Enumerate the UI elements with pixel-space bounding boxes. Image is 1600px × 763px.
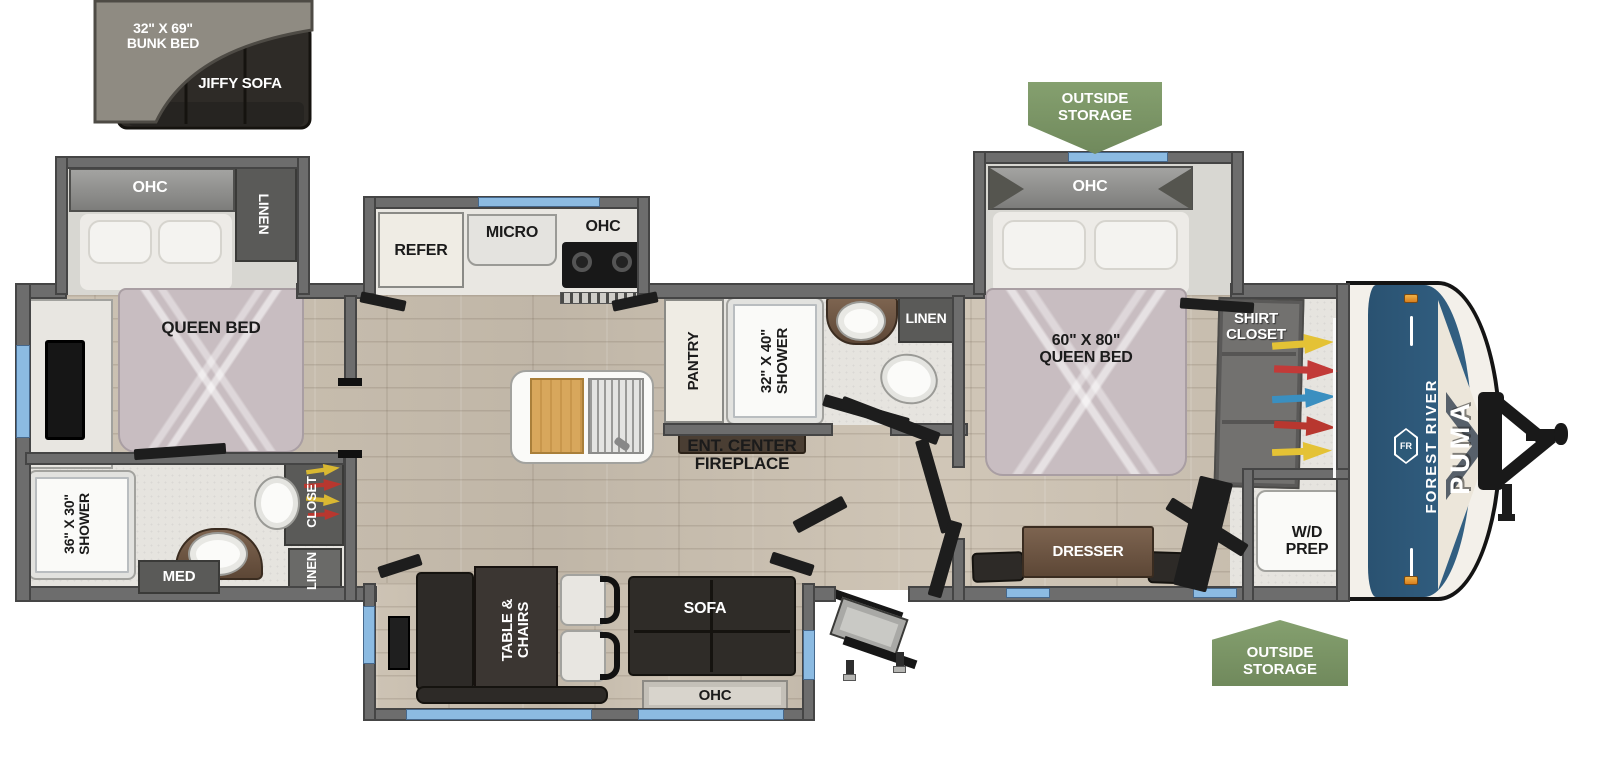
- med-label: MED: [140, 566, 218, 588]
- refer-label: REFER: [378, 240, 464, 262]
- micro-label: MICRO: [467, 222, 557, 244]
- chair-back-2-icon: [600, 632, 620, 680]
- closet-rod: [1333, 318, 1336, 478]
- tv-rear-bedroom-icon: [45, 340, 85, 440]
- living-slide-window-1: [406, 709, 592, 720]
- wd-prep-label: W/D PREP: [1272, 518, 1342, 564]
- tv-living-icon: [388, 616, 410, 670]
- rear-closet-label: CLOSET: [304, 464, 320, 540]
- mid-shower-label: 32" X 40" SHOWER: [758, 305, 792, 417]
- rv-floorplan: FR 32" X 69" BUNK BED JIFFY SOFA OUTSIDE…: [0, 0, 1600, 763]
- kitchen-ohc-label: OHC: [565, 216, 641, 238]
- living-slide-window-2: [638, 709, 784, 720]
- front-bedroom-ohc-label: OHC: [1038, 174, 1142, 200]
- wd-wall-left: [1242, 468, 1254, 602]
- bottom-window-1: [1006, 588, 1050, 598]
- chair-back-1-icon: [600, 576, 620, 624]
- rear-window: [16, 345, 30, 438]
- rear-bedroom-ohc-label: OHC: [100, 176, 200, 200]
- sofa-seat-line: [634, 630, 790, 633]
- pantry-label: PANTRY: [685, 309, 703, 413]
- kitchen-slide-wall-left: [363, 196, 376, 295]
- rear-slide-wall-right: [297, 156, 310, 295]
- puma-label: PUMA: [1444, 381, 1476, 513]
- rear-bed-pillow-2: [158, 220, 222, 264]
- top-wall-c: [637, 283, 985, 299]
- front-slide-wall-right: [1231, 151, 1244, 295]
- brand-dash-bottom: [1410, 548, 1413, 578]
- bedroom-kitchen-wall-upper: [344, 295, 357, 385]
- bedroom-door-jamb-1: [338, 378, 362, 386]
- front-bed-pillow-1: [1002, 220, 1086, 270]
- outside-storage-bottom-label: OUTSIDE STORAGE: [1243, 644, 1317, 679]
- living-slide-window-left: [363, 606, 375, 664]
- front-slide-wall-left: [973, 151, 986, 295]
- entry-step-foot-2: [893, 666, 906, 673]
- rear-slide-wall-top: [55, 156, 310, 169]
- hitch-bar: [1478, 392, 1504, 490]
- jiffy-sofa-label: JIFFY SOFA: [190, 72, 290, 96]
- sofa-seam: [710, 580, 713, 672]
- rear-bedroom-linen-label: LINEN: [256, 174, 272, 254]
- hitch-jack-post: [1502, 484, 1512, 516]
- marker-light-top-icon: [1404, 294, 1418, 303]
- stove-burner-right-icon: [612, 252, 632, 272]
- mid-linen-label: LINEN: [896, 308, 956, 328]
- rear-slide-wall-left: [55, 156, 68, 295]
- front-queen-bed-label: 60" X 80" QUEEN BED: [1008, 328, 1164, 370]
- outside-storage-top-label: OUTSIDE STORAGE: [1058, 90, 1132, 125]
- entry-step-foot-1: [843, 674, 856, 681]
- ent-center-label: ENT. CENTER FIREPLACE: [636, 430, 848, 480]
- mid-sink: [836, 301, 886, 341]
- cutting-board: [530, 378, 584, 454]
- marker-light-bottom-icon: [1404, 576, 1418, 585]
- front-slide-window: [1068, 152, 1168, 162]
- front-bed-pillow-2: [1094, 220, 1178, 270]
- rear-linen-label: LINEN: [304, 544, 320, 598]
- shirt-closet-shelf-1: [1222, 352, 1296, 356]
- floor-mat: [416, 686, 608, 704]
- brand-dash-top: [1410, 316, 1413, 346]
- table-chairs-label: TABLE & CHAIRS: [499, 574, 533, 686]
- hitch-coupler-icon: [1554, 423, 1568, 445]
- dresser-label: DRESSER: [1026, 540, 1150, 564]
- hitch-jack-foot: [1498, 514, 1515, 521]
- rear-bed-pillow-1: [88, 220, 152, 264]
- bottom-wall-c: [908, 586, 1350, 602]
- shirt-closet-label: SHIRT CLOSET: [1212, 306, 1300, 348]
- forest-river-label: FOREST RIVER: [1421, 340, 1443, 552]
- queen-bed-front: [985, 288, 1187, 476]
- bedroom-kitchen-wall-lower: [344, 455, 357, 602]
- outside-storage-banner-top: OUTSIDE STORAGE: [1028, 82, 1162, 154]
- dinette-bench: [416, 572, 474, 690]
- kitchen-slide-wall-right: [637, 196, 650, 295]
- top-wall-d: [1230, 283, 1350, 299]
- stove-burner-left-icon: [572, 252, 592, 272]
- nightstand-left: [971, 551, 1024, 583]
- kitchen-slide-window: [478, 197, 600, 207]
- rear-wall: [15, 283, 31, 602]
- outside-storage-banner-bottom: OUTSIDE STORAGE: [1212, 620, 1348, 686]
- sofa-label: SOFA: [640, 598, 770, 620]
- living-slide-window-right: [803, 630, 815, 680]
- bedroom-door-jamb-2: [338, 450, 362, 458]
- rear-shower-label: 36" X 30" SHOWER: [60, 474, 94, 574]
- living-ohc-label: OHC: [650, 684, 780, 708]
- forest-river-logo-text: FR: [1400, 441, 1412, 451]
- rear-toilet: [254, 476, 300, 530]
- queen-bed-rear: [118, 288, 304, 453]
- rear-queen-bed-label: QUEEN BED: [146, 316, 276, 340]
- bunk-bed-label: 32" X 69" BUNK BED: [108, 16, 218, 56]
